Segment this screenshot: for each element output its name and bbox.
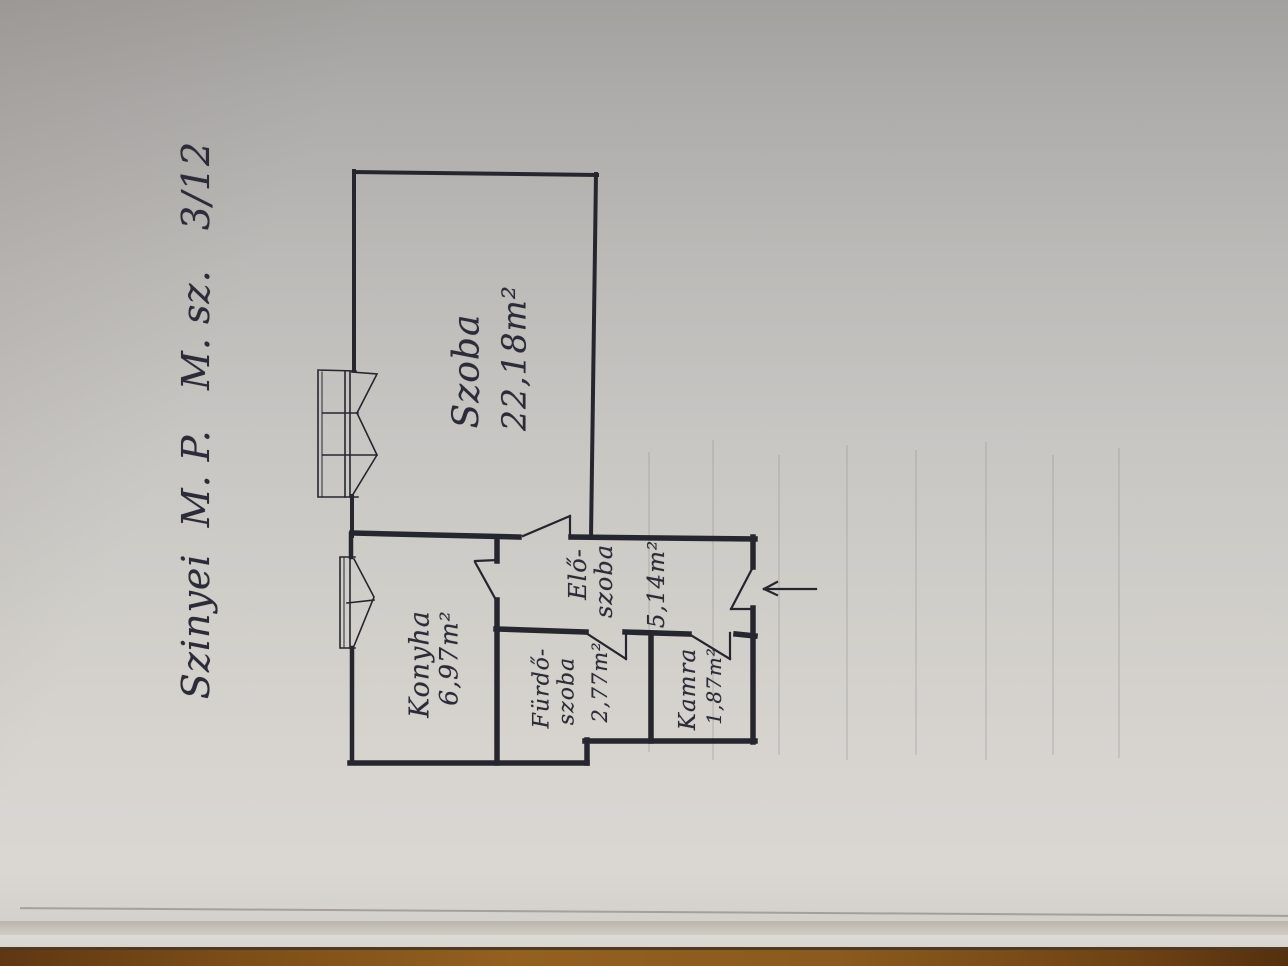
room-label-konyha: Konyha [405,610,436,718]
konyha-window-icon [340,557,374,648]
photo-of-floor-plan-sheet: Szinyei M. P. M. sz. 3/12 Szoba 22,18m² … [0,0,1288,966]
room-area-eloszoba: 5,14m² [644,540,670,628]
wall-szoba-konyha [352,533,519,537]
room-label-szoba: Szoba [447,314,488,429]
entrance-door-symbol [731,567,753,609]
plan-title: Szinyei M. P. M. sz. 3/12 [174,141,218,699]
szoba-door-symbol [523,516,570,536]
entrance-arrow-icon [764,582,816,595]
room-label-eloszoba-line2: szoba [590,544,618,618]
konyha-left-wall [351,534,352,763]
room-label-furdoszoba-line2: szoba [555,657,580,725]
room-label-kamra: Kamra [675,648,701,730]
wall-right [591,174,596,538]
wall-top [354,172,597,175]
room-area-konyha: 6,97m² [435,610,464,705]
table-surface [0,950,1288,966]
room-area-furdoszoba: 2,77m² [588,641,612,722]
room-label-furdoszoba-line1: Fürdő- [530,648,555,729]
room-area-szoba: 22,18m² [495,285,534,431]
wall-kamra-top-right [736,634,755,636]
wall-szoba-eloszoba [571,537,755,539]
sheet-edge-shadow [0,921,1288,936]
room-label-eloszoba-line1: Elő- [564,548,592,600]
konyha-door-symbol [475,560,497,600]
room-area-kamra: 1,87m² [702,647,726,725]
wall-furdo-kamra-top [625,632,689,634]
wall-eloszoba-furdo [496,629,586,632]
szoba-window-icon [318,370,377,497]
